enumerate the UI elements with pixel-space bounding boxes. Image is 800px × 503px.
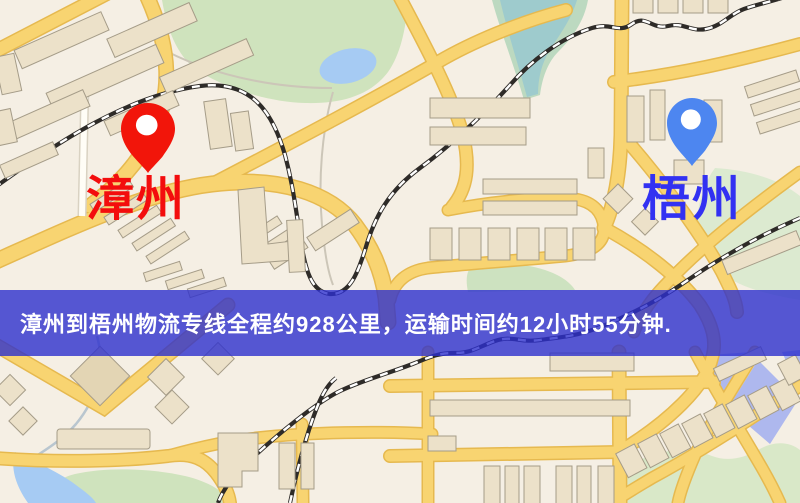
origin-pin-icon	[121, 103, 175, 173]
destination-city-label: 梧州	[642, 176, 742, 224]
route-info-text: 漳州到梧州物流专线全程约928公里，运输时间约12小时55分钟.	[0, 307, 672, 339]
map-image: 漳州 梧州 漳州到梧州物流专线全程约928公里，运输时间约12小时55分钟.	[0, 0, 800, 503]
destination-pin-icon	[667, 98, 717, 166]
map-canvas	[0, 0, 800, 503]
origin-city-label: 漳州	[86, 176, 186, 224]
route-info-banner: 漳州到梧州物流专线全程约928公里，运输时间约12小时55分钟.	[0, 290, 800, 356]
